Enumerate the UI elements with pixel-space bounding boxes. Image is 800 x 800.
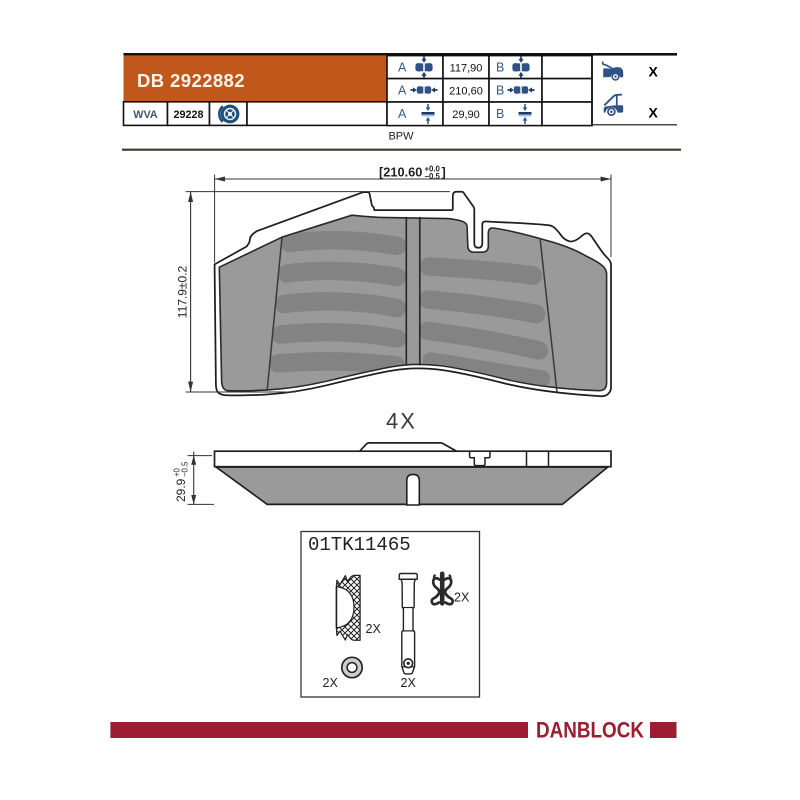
svg-text:−0.5: −0.5 bbox=[181, 461, 190, 477]
svg-text:B: B bbox=[496, 61, 504, 75]
svg-text:210,60: 210,60 bbox=[449, 86, 483, 98]
svg-text:2X: 2X bbox=[323, 676, 339, 690]
svg-text:2X: 2X bbox=[454, 591, 470, 605]
svg-text:B: B bbox=[496, 107, 504, 121]
svg-text:29.9: 29.9 bbox=[174, 478, 188, 502]
svg-text:X: X bbox=[649, 64, 659, 80]
svg-text:A: A bbox=[398, 61, 407, 75]
svg-text:BPW: BPW bbox=[388, 131, 414, 143]
svg-text:01TK11465: 01TK11465 bbox=[308, 534, 411, 556]
svg-text:4X: 4X bbox=[386, 409, 417, 434]
svg-text:A: A bbox=[398, 107, 407, 121]
svg-text:A: A bbox=[398, 84, 407, 98]
svg-text:DB 2922882: DB 2922882 bbox=[137, 70, 245, 91]
svg-text:DANBLOCK: DANBLOCK bbox=[536, 718, 645, 743]
svg-text:WVA: WVA bbox=[133, 109, 158, 121]
svg-text:2X: 2X bbox=[366, 622, 382, 636]
svg-text:29,90: 29,90 bbox=[452, 109, 480, 121]
svg-text:B: B bbox=[496, 84, 504, 98]
svg-text:[210.60: [210.60 bbox=[379, 165, 422, 180]
svg-text:29228: 29228 bbox=[173, 109, 203, 121]
svg-text:2X: 2X bbox=[401, 676, 417, 690]
svg-text:X: X bbox=[649, 105, 659, 121]
svg-text:117.9±0.2: 117.9±0.2 bbox=[176, 265, 190, 318]
svg-text:]: ] bbox=[442, 165, 446, 180]
svg-text:−0.5: −0.5 bbox=[425, 172, 441, 181]
svg-text:117,90: 117,90 bbox=[450, 63, 483, 75]
